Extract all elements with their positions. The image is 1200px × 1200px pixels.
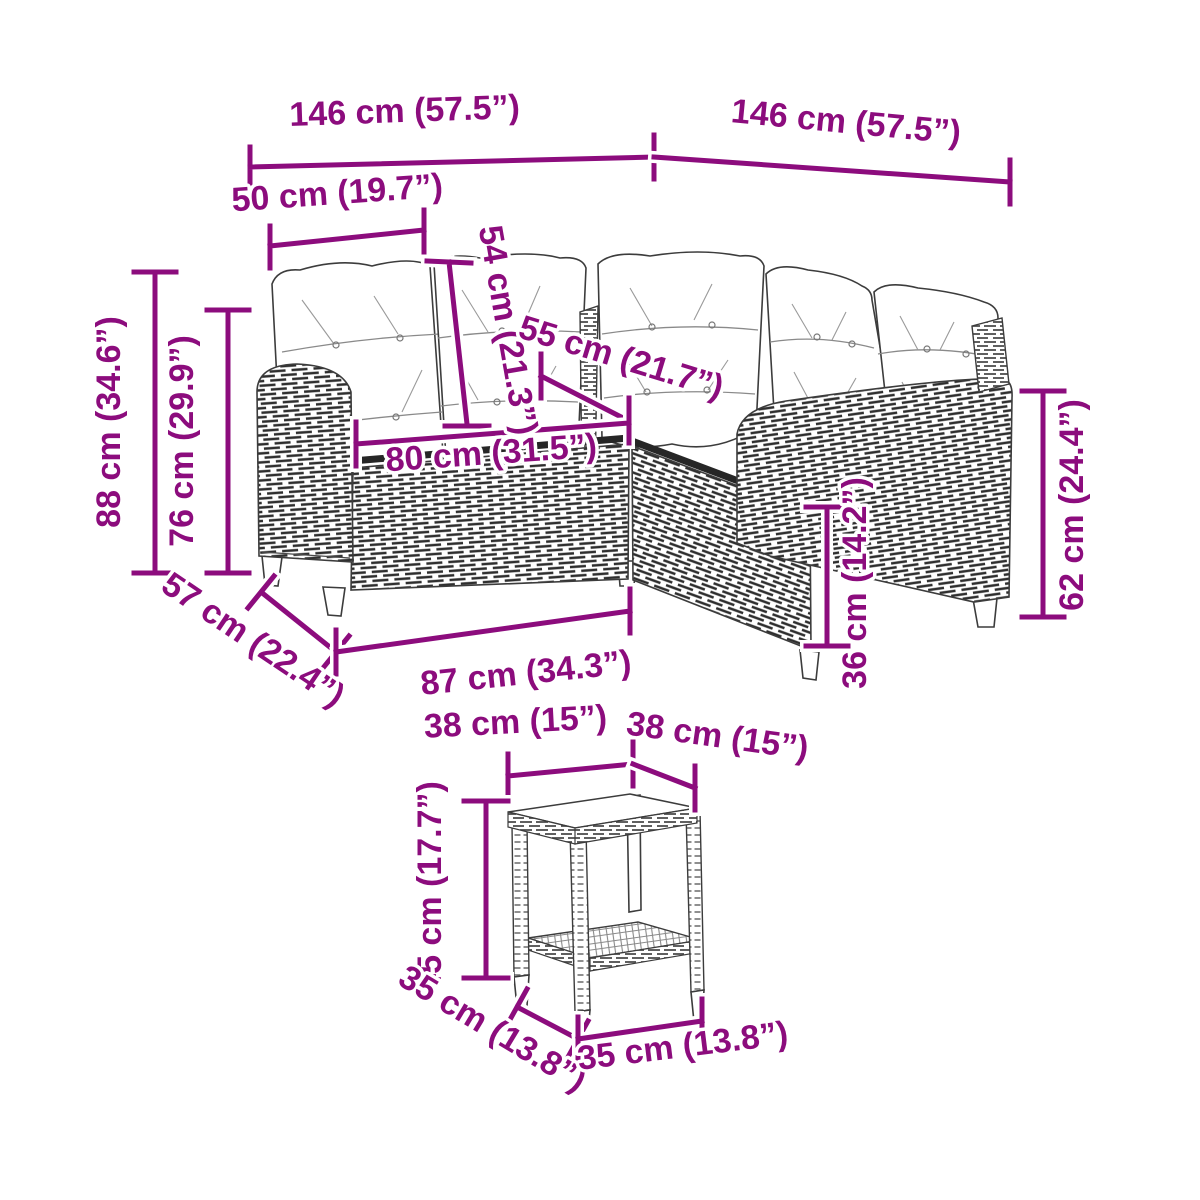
table-leg-front (570, 828, 590, 1012)
diagram-canvas: 146 cm (57.5”) 146 cm (57.5”) 50 cm (19.… (0, 0, 1200, 1200)
dim-76-label: 76 cm (29.9”) (163, 335, 201, 547)
sofa-leg (323, 587, 345, 616)
dim-76-line (207, 310, 249, 573)
dimension-diagram: 146 cm (57.5”) 146 cm (57.5”) 50 cm (19.… (0, 0, 1200, 1200)
table-leg-right (686, 810, 704, 992)
dim-45-line (464, 801, 508, 978)
dim-38-left-label: 38 cm (15”) (423, 698, 608, 746)
right-back-post (972, 318, 1009, 392)
dim-50-label: 50 cm (19.7”) (230, 167, 444, 220)
table-drawing (508, 794, 704, 1043)
sofa-leg (800, 650, 819, 680)
dim-62-label: 62 cm (24.4”) (1053, 399, 1091, 611)
left-armrest (257, 364, 353, 562)
dim-146-right-label: 146 cm (57.5”) (729, 92, 962, 152)
table-leg-left (512, 822, 529, 977)
dim-146-left-label: 146 cm (57.5”) (289, 88, 521, 134)
dim-87-label: 87 cm (34.3”) (419, 643, 633, 703)
dim-36-label: 36 cm (14.2”) (836, 477, 874, 689)
dim-88-label: 88 cm (34.6”) (90, 316, 128, 528)
dim-38-right-label: 38 cm (15”) (624, 705, 811, 768)
